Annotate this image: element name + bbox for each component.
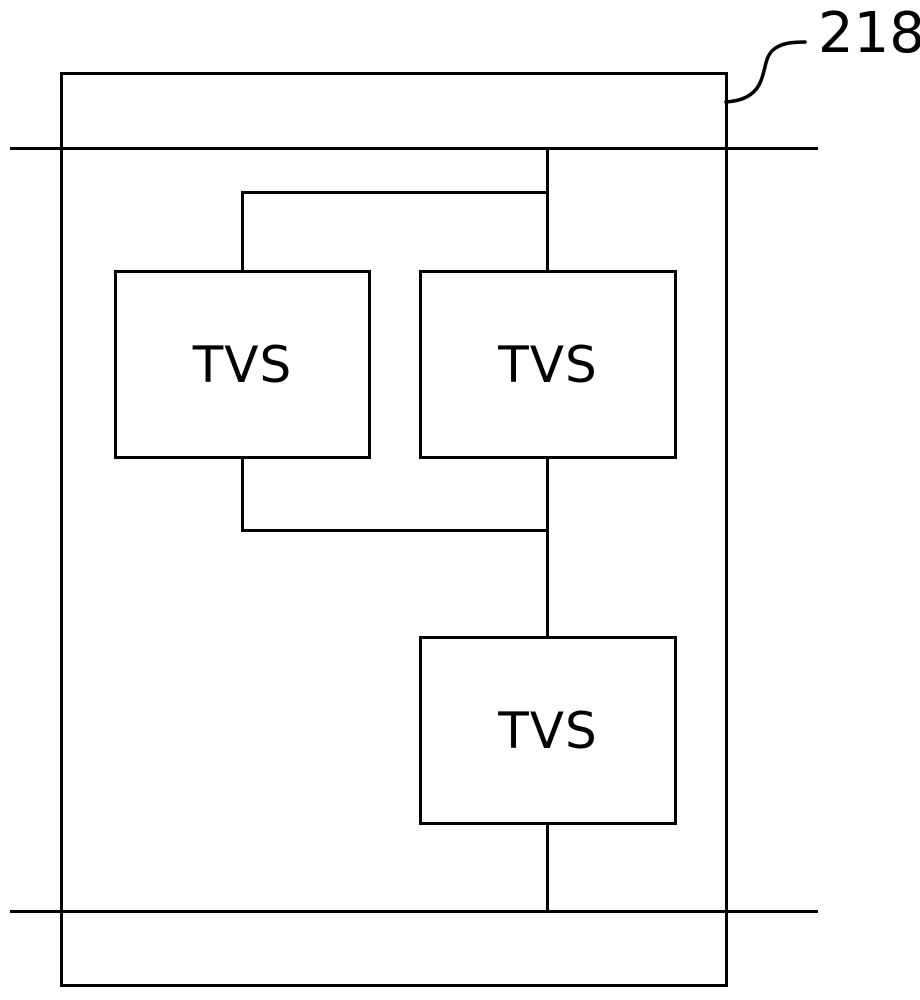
- connector-tvs-bottom-to-bus: [546, 822, 549, 912]
- tvs-block-right: TVS: [419, 270, 677, 459]
- connector-branch-top: [241, 191, 548, 194]
- reference-numeral: 218: [818, 0, 920, 62]
- tvs-block-left: TVS: [114, 270, 371, 459]
- connector-tvs-right-to-tvs-bottom: [546, 456, 549, 638]
- patent-figure-canvas: TVS TVS TVS 218: [0, 0, 920, 1000]
- tvs-block-bottom-label: TVS: [498, 702, 597, 760]
- connector-tvs-left-down: [241, 456, 244, 532]
- connector-branch-to-tvs-left: [241, 191, 244, 272]
- tvs-block-bottom: TVS: [419, 636, 677, 825]
- top-bus-line: [10, 147, 818, 150]
- connector-branch-middle: [241, 529, 549, 532]
- bottom-bus-line: [10, 910, 818, 913]
- tvs-block-left-label: TVS: [193, 336, 292, 394]
- connector-bus-to-tvs-right: [546, 147, 549, 273]
- tvs-block-right-label: TVS: [498, 336, 597, 394]
